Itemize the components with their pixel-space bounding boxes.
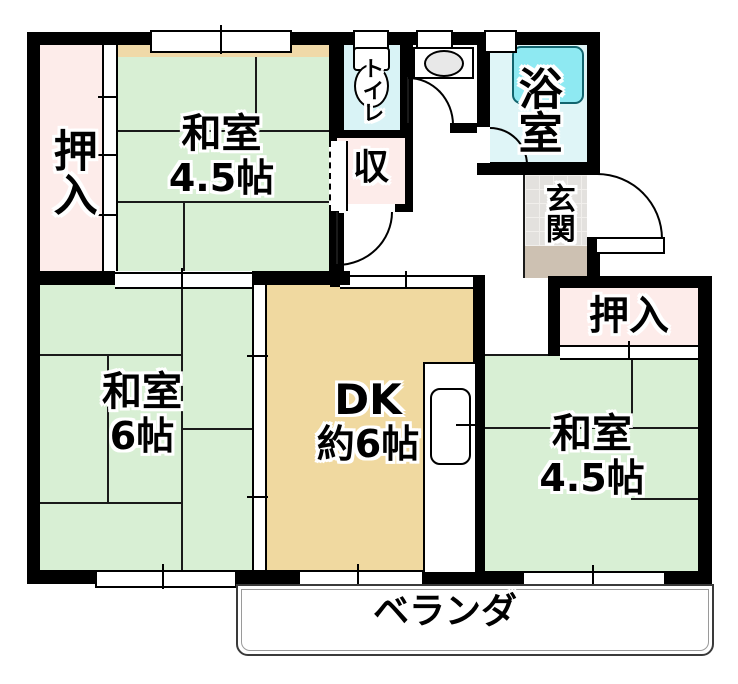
wall-closet-right-top (548, 276, 712, 288)
room-size: 4.5帖 (486, 457, 698, 500)
wall-bath-right (587, 32, 600, 173)
fusuma-track-room-divider (115, 272, 252, 289)
window-bottom-washitsu-left (95, 570, 237, 588)
washroom-door-arc (408, 77, 454, 125)
room-name: 和室 (114, 112, 329, 157)
room-label-bathroom: 浴室 (510, 50, 562, 170)
room-label-storage: 収 (337, 148, 405, 188)
track-tick (247, 355, 268, 357)
front-door-leaf (595, 237, 665, 254)
wall-wash-bottom (450, 123, 480, 133)
track-tick (247, 496, 268, 498)
room-size: 約6帖 (263, 423, 473, 466)
room-label-dk: DK 約6帖 (263, 376, 473, 466)
room-name: 和室 (486, 412, 698, 457)
room-name: DK (263, 376, 473, 423)
track-tick (628, 341, 630, 360)
genkan-edge-line (523, 175, 525, 278)
wall-left (27, 32, 40, 584)
room-label-washitsu-top: 和室 4.5帖 (114, 112, 329, 199)
room-label-toilet: トイレ (352, 44, 388, 136)
room-label-washitsu-left: 和室 6帖 (36, 370, 248, 457)
room-label-oshiire-left: 押入 (40, 102, 102, 242)
tatami-line (40, 354, 182, 356)
window-mullion (220, 25, 222, 54)
room-size: 4.5帖 (114, 157, 329, 200)
room-label-oshiire-right: 押入 (558, 294, 700, 339)
washbasin-bowl-icon (424, 50, 464, 77)
track-tick (405, 271, 407, 289)
room-size: 6帖 (36, 415, 248, 458)
tatami-line (114, 201, 329, 203)
front-door-arc (597, 173, 663, 239)
floorplan-canvas: 押入 和室 4.5帖 トイレ 収 浴室 玄関 押入 和室 6帖 DK 約6帖 和… (0, 0, 738, 684)
wall-outer-right (698, 276, 712, 585)
wall-divider-left (27, 271, 115, 285)
tatami-line (40, 502, 182, 504)
room-label-genkan: 玄関 (536, 174, 578, 252)
window-mullion (162, 564, 164, 589)
wall-nub (330, 273, 340, 287)
room-label-veranda: ベランダ (310, 592, 580, 632)
room-name: 和室 (36, 370, 248, 415)
storage-door-arc (337, 212, 393, 266)
tatami-line (183, 202, 185, 271)
bathroom-door-opening (477, 127, 490, 163)
track-tick (98, 96, 118, 98)
room-label-washitsu-right: 和室 4.5帖 (486, 412, 698, 499)
track-tick (181, 268, 183, 288)
